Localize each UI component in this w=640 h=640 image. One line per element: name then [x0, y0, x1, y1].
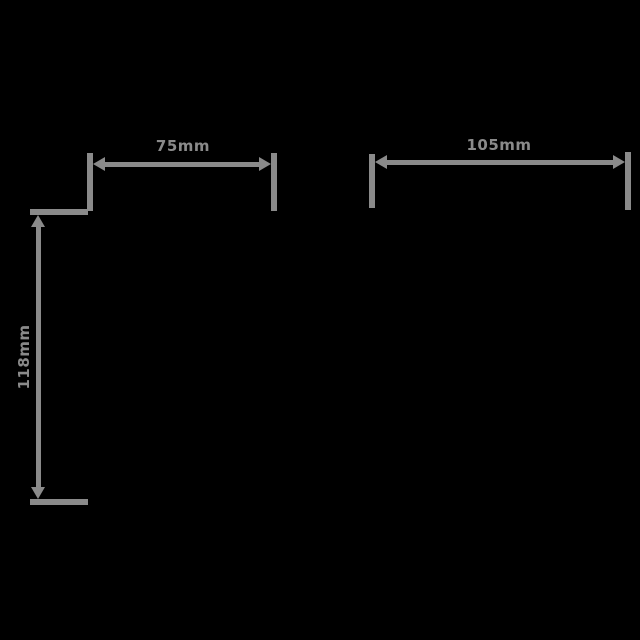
arrowhead-right-icon	[613, 155, 625, 169]
extension-line	[271, 153, 277, 211]
dimension-drawing-canvas: 75mm 105mm 118mm	[0, 0, 640, 640]
dimension-line	[383, 160, 617, 165]
dimension-line	[101, 162, 263, 167]
arrowhead-right-icon	[259, 157, 271, 171]
arrowhead-left-icon	[93, 157, 105, 171]
dimension-label-left-height: 118mm	[15, 292, 33, 422]
extension-line	[625, 152, 631, 210]
dimension-label-top-left: 75mm	[118, 137, 248, 155]
arrowhead-down-icon	[31, 487, 45, 499]
dimension-line	[36, 223, 41, 491]
extension-line	[30, 499, 88, 505]
arrowhead-left-icon	[375, 155, 387, 169]
dimension-label-top-right: 105mm	[434, 136, 564, 154]
arrowhead-up-icon	[31, 215, 45, 227]
